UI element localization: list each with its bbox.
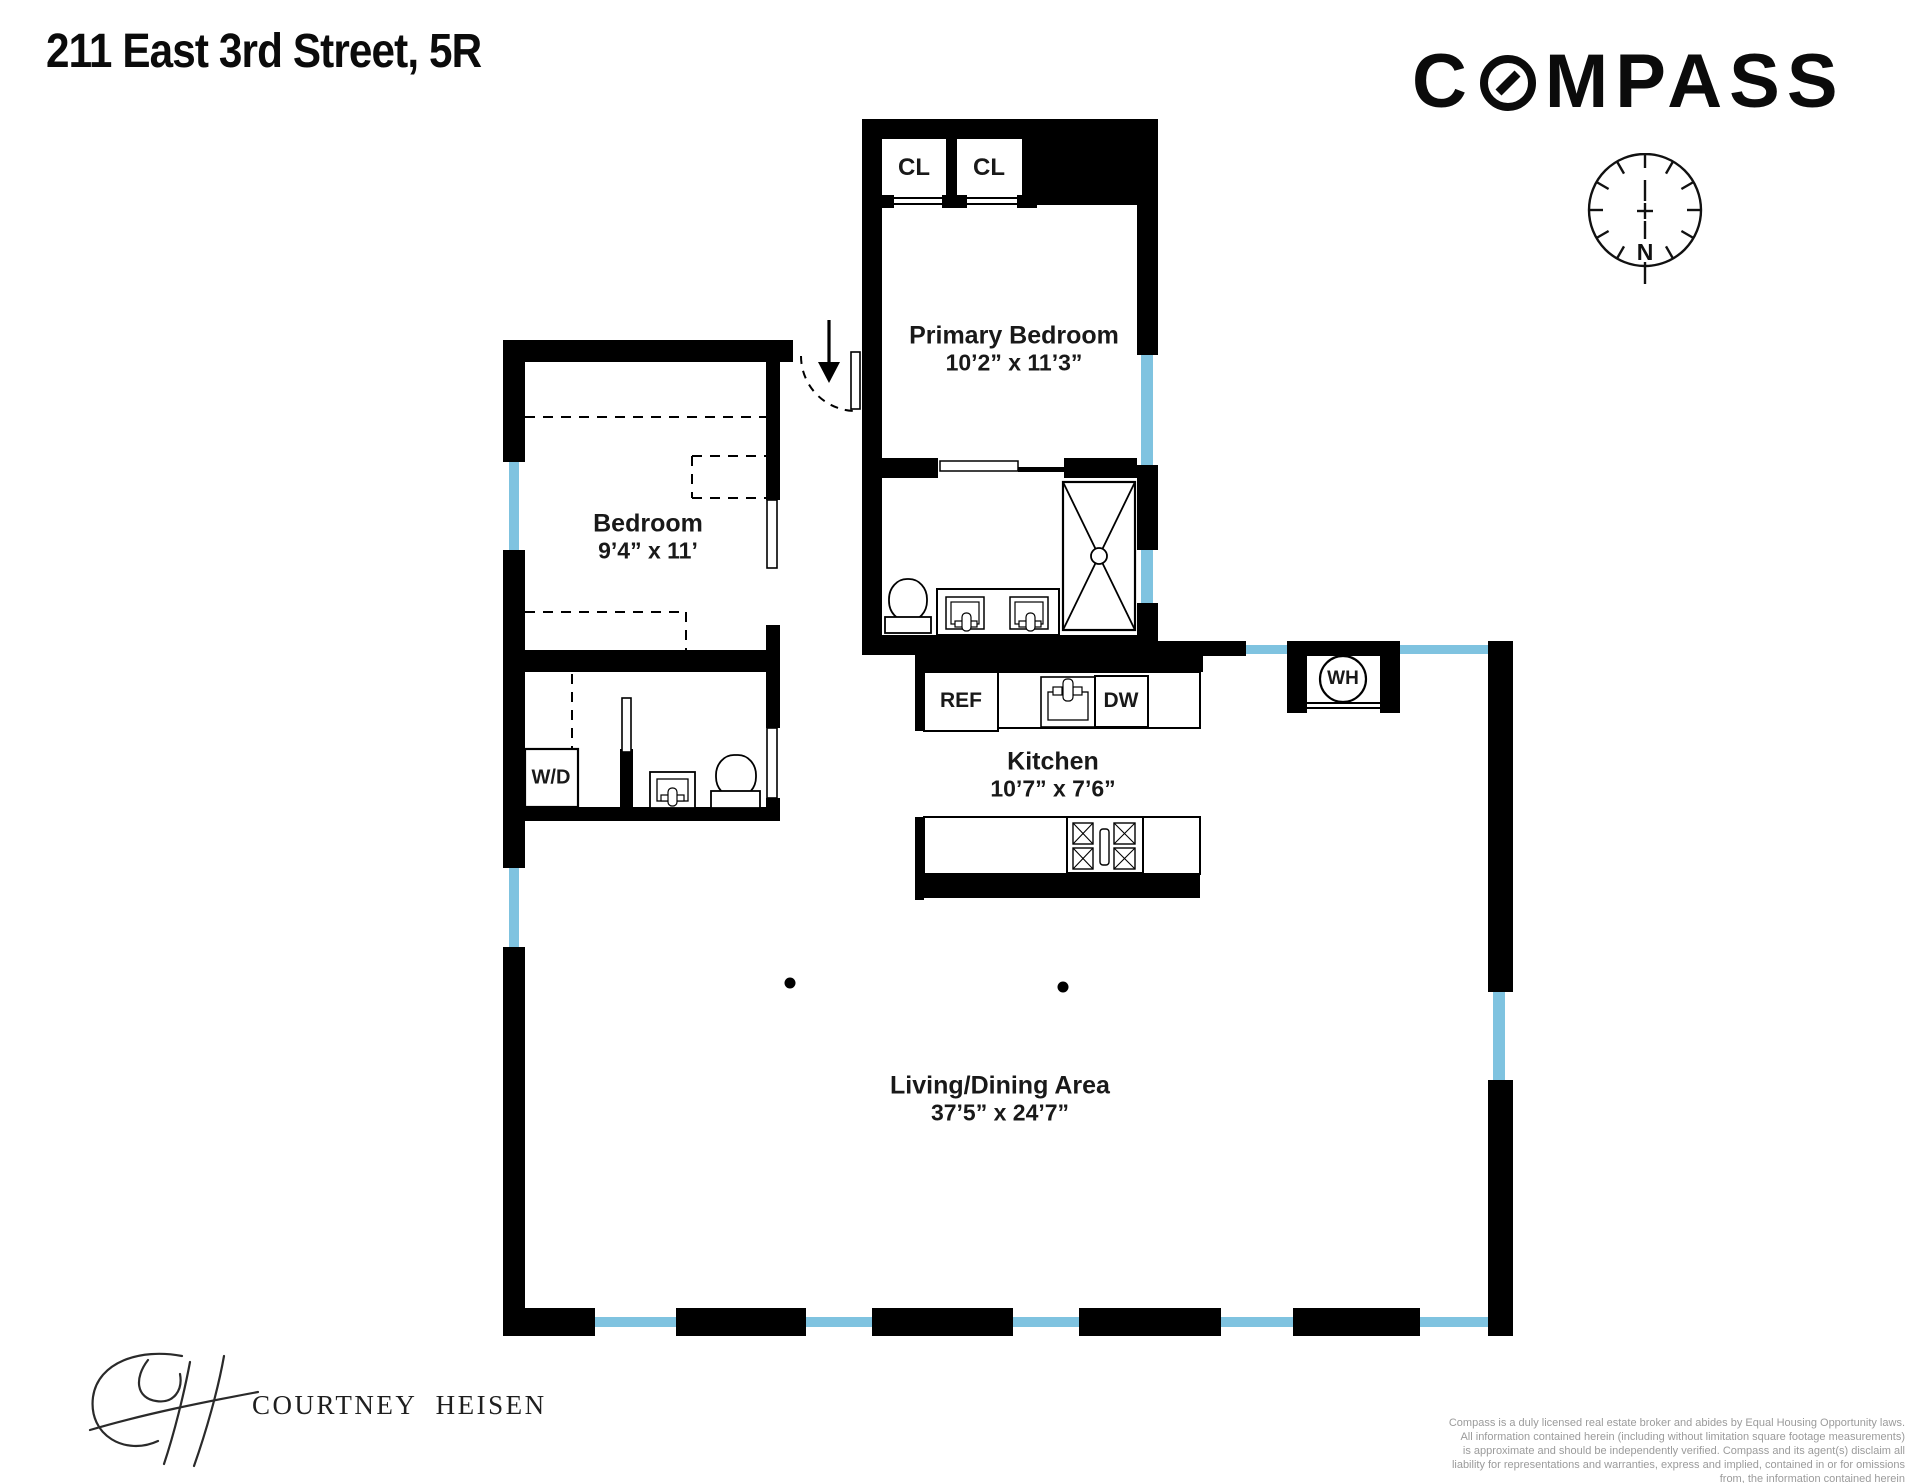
double-vanity-icon bbox=[937, 589, 1059, 635]
room-dims: 10’2” x 11’3” bbox=[909, 350, 1119, 376]
toilet-icon bbox=[711, 755, 760, 808]
disclaimer: Compass is a duly licensed real estate b… bbox=[1205, 1416, 1905, 1483]
room-name: Kitchen bbox=[990, 749, 1115, 776]
disclaimer-line: liability for representations and warran… bbox=[1205, 1458, 1905, 1472]
washer-dryer-label: W/D bbox=[532, 767, 571, 790]
water-heater-label: WH bbox=[1327, 668, 1359, 690]
entry-door-leaf bbox=[851, 352, 860, 409]
room-dims: 37’5” x 24’7” bbox=[890, 1100, 1110, 1126]
kitchen-label: Kitchen 10’7” x 7’6” bbox=[990, 749, 1115, 802]
primary-bathroom-fixtures bbox=[885, 482, 1135, 635]
columns bbox=[785, 978, 1069, 993]
floorplan-svg bbox=[0, 0, 1920, 1483]
bedroom-label: Bedroom 9’4” x 11’ bbox=[593, 511, 703, 564]
stove-icon bbox=[1067, 817, 1143, 873]
kitchen-island bbox=[924, 817, 1200, 874]
floorplan-page: { "header": { "title": "211 East 3rd Str… bbox=[0, 0, 1920, 1483]
wd-door-leaf bbox=[622, 698, 631, 752]
room-name: Living/Dining Area bbox=[890, 1073, 1110, 1100]
entry-arrow-icon bbox=[818, 320, 840, 383]
bathroom2-door-leaf bbox=[767, 728, 777, 798]
refrigerator-label: REF bbox=[940, 689, 982, 713]
toilet-icon bbox=[885, 579, 931, 633]
closet-1-label: CL bbox=[898, 154, 930, 182]
room-dims: 9’4” x 11’ bbox=[593, 538, 703, 564]
room-name: Primary Bedroom bbox=[909, 323, 1119, 350]
disclaimer-line: All information contained herein (includ… bbox=[1205, 1430, 1905, 1444]
room-dims: 10’7” x 7’6” bbox=[990, 776, 1115, 802]
bedroom-door-leaf bbox=[767, 500, 777, 568]
dishwasher-label: DW bbox=[1104, 689, 1139, 713]
agent-name: COURTNEY HEISEN bbox=[252, 1390, 547, 1421]
kitchen-sink-icon bbox=[1041, 677, 1095, 727]
dashed-lines bbox=[525, 417, 766, 748]
living-dining-label: Living/Dining Area 37’5” x 24’7” bbox=[890, 1073, 1110, 1126]
closet-2-label: CL bbox=[973, 154, 1005, 182]
agent-monogram-icon bbox=[84, 1348, 264, 1473]
sink-icon bbox=[650, 772, 695, 808]
disclaimer-line: Compass is a duly licensed real estate b… bbox=[1205, 1416, 1905, 1430]
disclaimer-line: from, the information contained herein bbox=[1205, 1472, 1905, 1483]
room-name: Bedroom bbox=[593, 511, 703, 538]
entry-door bbox=[801, 320, 860, 411]
shower-icon bbox=[1063, 482, 1135, 630]
primary-bedroom-label: Primary Bedroom 10’2” x 11’3” bbox=[909, 323, 1119, 376]
disclaimer-line: is approximate and should be independent… bbox=[1205, 1444, 1905, 1458]
